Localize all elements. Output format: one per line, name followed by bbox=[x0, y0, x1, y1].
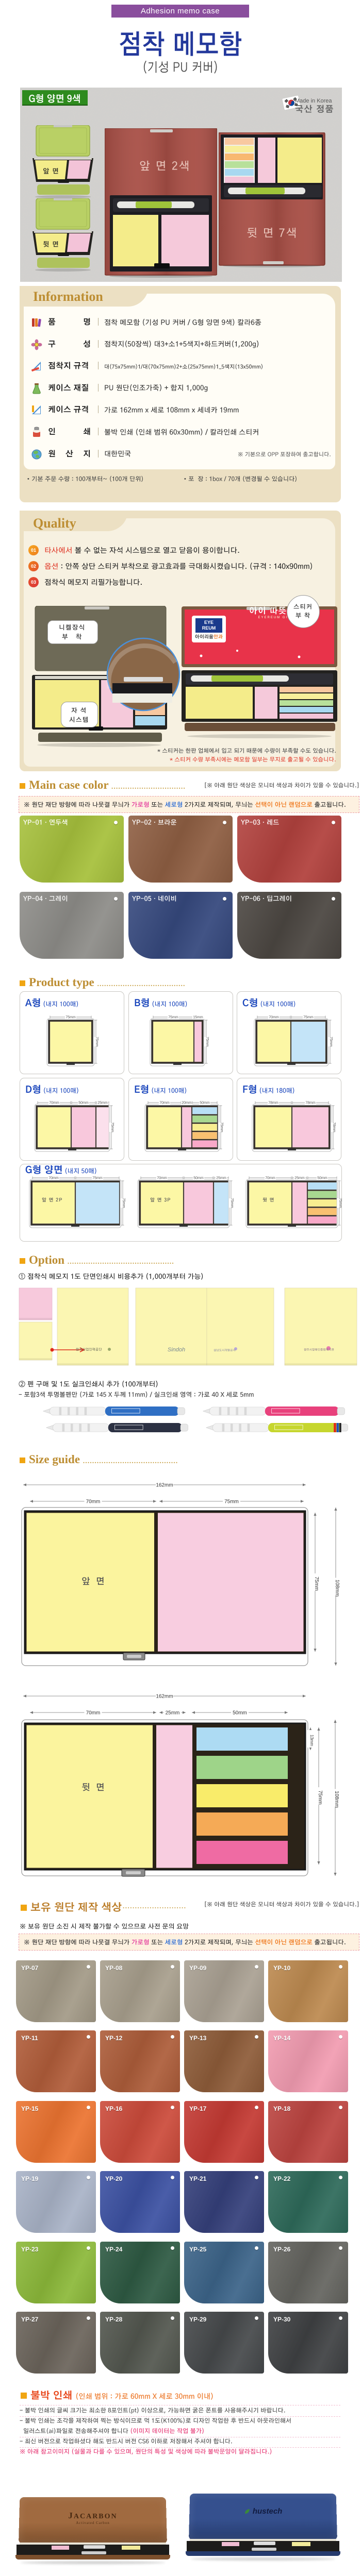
svg-text:75mm: 75mm bbox=[230, 1198, 234, 1208]
svg-text:78mm: 78mm bbox=[332, 1122, 336, 1132]
svg-text:EYE: EYE bbox=[204, 620, 214, 625]
svg-text:50mm: 50mm bbox=[78, 1101, 89, 1105]
svg-text:75mm: 75mm bbox=[205, 1037, 209, 1047]
svg-text:108mm: 108mm bbox=[334, 1580, 340, 1597]
svg-text:70mm: 70mm bbox=[86, 1710, 101, 1716]
svg-text:108mm: 108mm bbox=[334, 1791, 339, 1808]
svg-text:70mm: 70mm bbox=[159, 1101, 170, 1105]
svg-text:75mm: 75mm bbox=[95, 1037, 99, 1047]
svg-text:70mm: 70mm bbox=[86, 1499, 101, 1505]
svg-text:50mm: 50mm bbox=[193, 1177, 204, 1180]
svg-text:50mm: 50mm bbox=[317, 1177, 327, 1180]
svg-text:162mm: 162mm bbox=[156, 1694, 173, 1700]
svg-text:75mm: 75mm bbox=[224, 1499, 239, 1505]
svg-text:75mm: 75mm bbox=[122, 1198, 125, 1208]
svg-text:75mm: 75mm bbox=[65, 1016, 76, 1020]
svg-text:REUM: REUM bbox=[202, 625, 216, 631]
svg-text:25mm: 25mm bbox=[294, 1177, 305, 1180]
svg-text:78mm: 78mm bbox=[305, 1101, 316, 1105]
svg-text:75mm: 75mm bbox=[329, 1037, 333, 1047]
svg-text:75mm: 75mm bbox=[317, 1790, 323, 1805]
svg-text:75mm: 75mm bbox=[303, 1016, 314, 1020]
svg-text:25mm: 25mm bbox=[97, 1101, 108, 1105]
svg-text:70mm: 70mm bbox=[48, 1177, 59, 1180]
svg-text:70mm: 70mm bbox=[265, 1177, 275, 1180]
svg-text:75mm: 75mm bbox=[168, 1016, 178, 1020]
svg-text:75mm: 75mm bbox=[338, 1198, 342, 1208]
svg-text:70mm: 70mm bbox=[269, 1016, 279, 1020]
svg-text:50mm: 50mm bbox=[200, 1101, 210, 1105]
svg-text:70mm: 70mm bbox=[49, 1101, 59, 1105]
svg-text:50mm: 50mm bbox=[233, 1710, 247, 1716]
svg-text:78mm: 78mm bbox=[268, 1101, 278, 1105]
svg-text:75mm: 75mm bbox=[110, 1122, 114, 1132]
svg-text:13mm: 13mm bbox=[309, 1735, 314, 1747]
svg-text:25mm: 25mm bbox=[166, 1710, 180, 1716]
svg-text:75mm: 75mm bbox=[220, 1122, 223, 1132]
svg-text:20mm: 20mm bbox=[182, 1101, 192, 1105]
svg-text:162mm: 162mm bbox=[156, 1483, 173, 1488]
svg-text:75mm: 75mm bbox=[314, 1577, 319, 1591]
svg-text:70mm: 70mm bbox=[157, 1177, 167, 1180]
svg-text:75mm: 75mm bbox=[92, 1177, 103, 1180]
svg-text:25mm: 25mm bbox=[216, 1177, 226, 1180]
svg-text:15mm: 15mm bbox=[193, 1016, 203, 1020]
svg-text:Sindoh: Sindoh bbox=[168, 1347, 185, 1353]
